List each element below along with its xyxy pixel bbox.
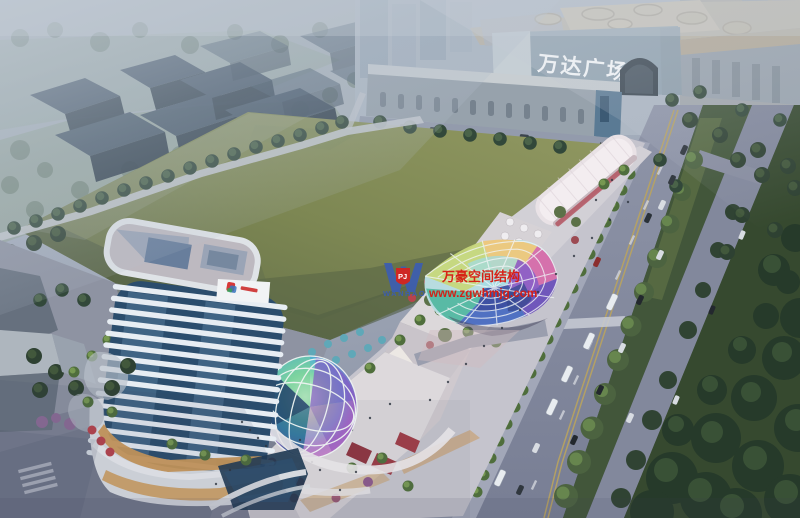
svg-text:WANHAO: WANHAO: [383, 289, 426, 298]
svg-text:万豪空间结构: 万豪空间结构: [441, 269, 520, 284]
svg-text:www.zgwhmjg.com: www.zgwhmjg.com: [428, 286, 537, 300]
svg-text:PJ: PJ: [398, 272, 407, 281]
